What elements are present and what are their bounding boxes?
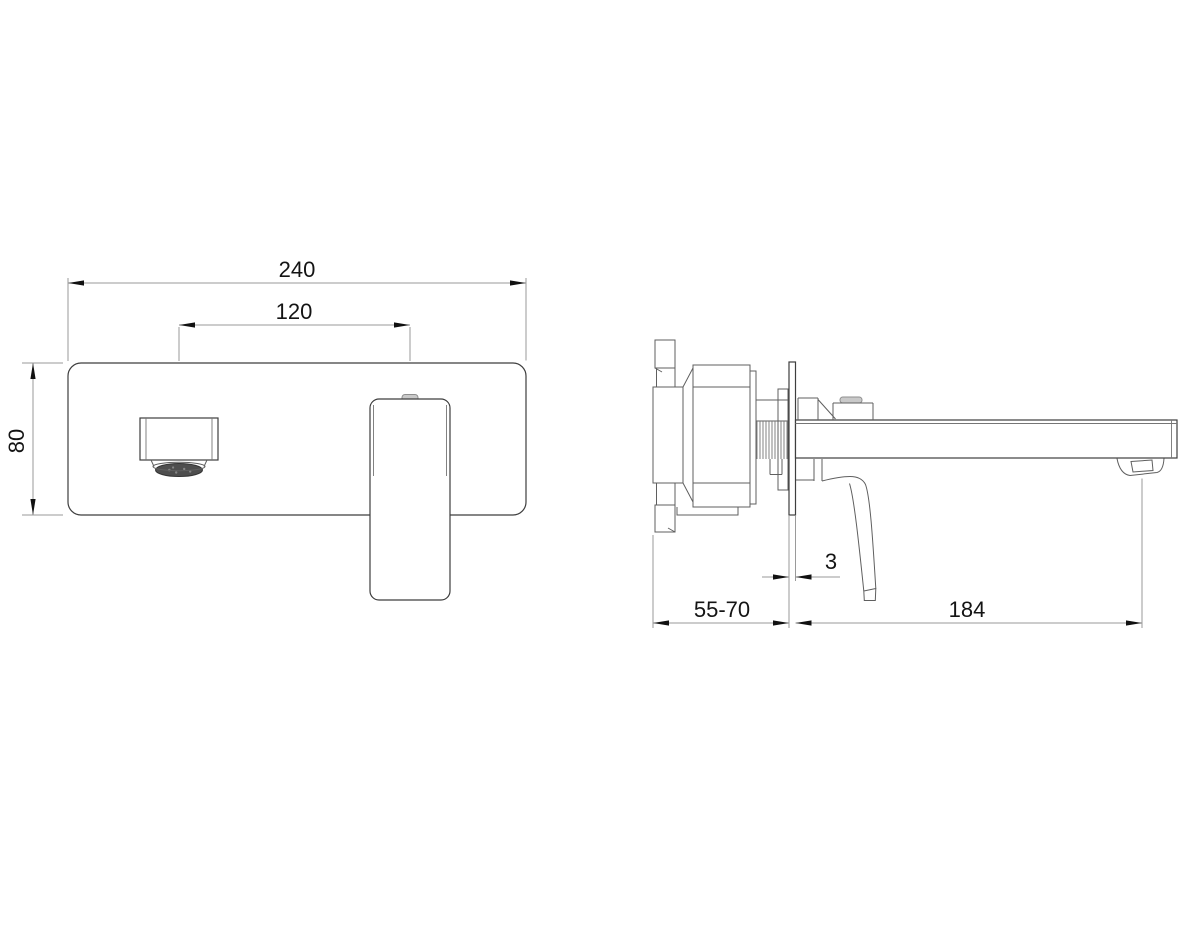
- bracket-top-tab: [655, 340, 675, 368]
- bracket-bottom-tab: [655, 505, 675, 532]
- side-mounting-bracket: [653, 340, 683, 532]
- side-valve-body: [677, 365, 756, 515]
- dim-80-arrow-bottom: [30, 499, 35, 515]
- dim-55-70-arrow-right: [773, 620, 789, 625]
- side-lever-foot: [864, 589, 876, 601]
- dim-3-label: 3: [825, 549, 837, 574]
- technical-drawing-page: 240 120 80: [0, 0, 1200, 951]
- dim-front-plate-height: 80: [4, 363, 63, 515]
- dim-184-arrow-right: [1126, 620, 1142, 625]
- front-spout-body: [140, 418, 218, 460]
- dim-front-spout-to-handle: 120: [179, 299, 410, 361]
- dim-184-arrow-left: [796, 620, 812, 625]
- thread-lines: [757, 421, 787, 459]
- spout-bar: [796, 420, 1178, 458]
- side-aerator-outlet: [1131, 460, 1153, 472]
- dim-120-arrow-left: [179, 322, 195, 327]
- dim-240-label: 240: [279, 257, 316, 282]
- side-handle-body: [833, 403, 873, 420]
- dim-55-70-label: 55-70: [694, 597, 750, 622]
- dim-55-70-arrow-left: [653, 620, 669, 625]
- dim-side-wall-depth: 55-70: [653, 516, 789, 628]
- bracket-lower-neck: [657, 483, 676, 505]
- side-handle-connector: [798, 398, 836, 420]
- bracket-chamfers: [655, 368, 675, 532]
- side-view: 55-70 3 184: [653, 340, 1177, 628]
- dim-side-spout-reach: 184: [796, 479, 1143, 629]
- bracket-flange: [653, 387, 683, 483]
- dim-side-plate-thickness: 3: [762, 516, 840, 581]
- dim-80-arrow-top: [30, 363, 35, 379]
- dim-120-lines: [179, 325, 410, 361]
- side-lever-hub: [796, 459, 822, 481]
- dim-120-label: 120: [276, 299, 313, 324]
- front-wall-plate: [68, 363, 526, 515]
- side-wall-plate: [789, 362, 796, 515]
- dim-3-arrow-left: [773, 574, 789, 579]
- dim-3-arrow-right: [796, 574, 812, 579]
- side-threaded-shank: [756, 389, 789, 490]
- dim-184-label: 184: [949, 597, 986, 622]
- valve-body-chamfers: [683, 368, 693, 502]
- dim-240-arrow-right: [510, 280, 526, 285]
- dim-80-label: 80: [4, 429, 29, 453]
- valve-body-lines: [693, 387, 750, 483]
- valve-body-box: [693, 365, 750, 507]
- side-handle-cap: [840, 397, 862, 403]
- drawing-svg: 240 120 80: [0, 0, 1200, 951]
- front-handle: [370, 399, 450, 600]
- dim-120-arrow-right: [394, 322, 410, 327]
- dim-240-arrow-left: [68, 280, 84, 285]
- side-spout: [796, 420, 1178, 476]
- front-view: 240 120 80: [4, 257, 526, 600]
- valve-body-rim: [750, 371, 756, 504]
- valve-body-step: [677, 507, 738, 515]
